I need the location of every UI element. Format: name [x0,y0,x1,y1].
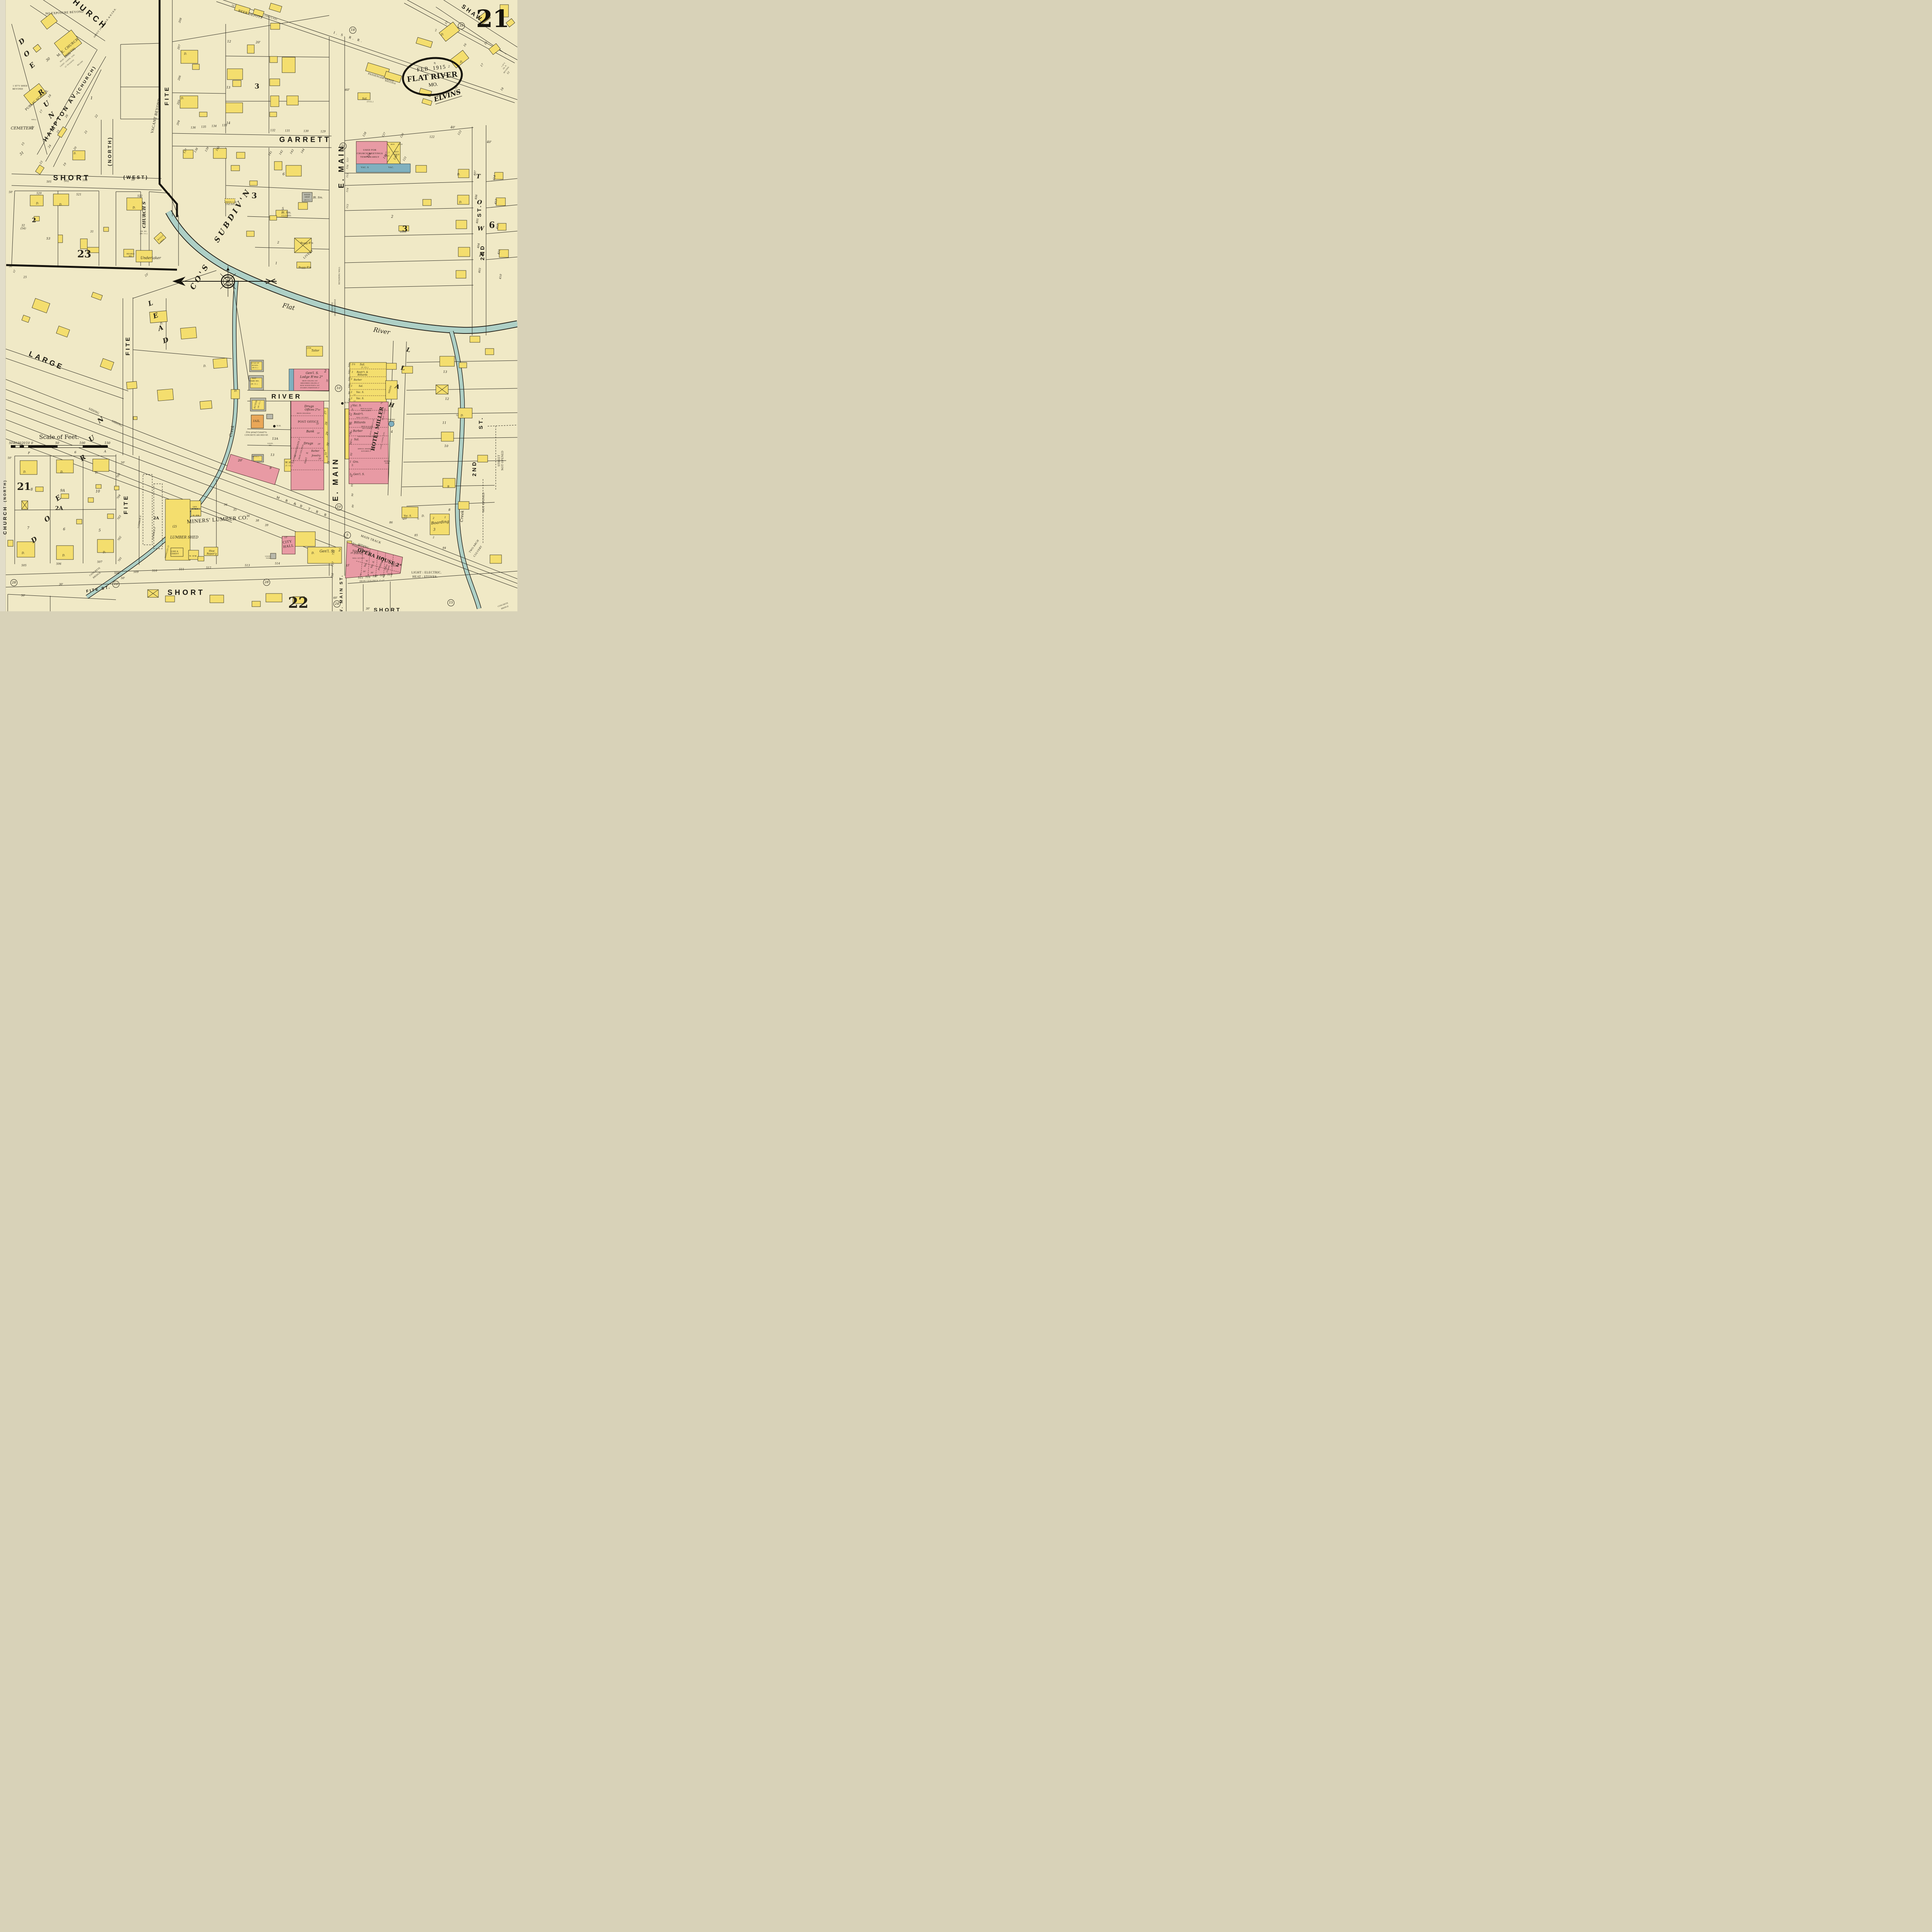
map-label: 35 [233,509,237,512]
map-label: NOT OPENED [482,492,485,512]
map-label: USED FOR [363,149,376,152]
map-label: (2) [172,525,177,528]
map-label: IRON [391,144,395,145]
map-label: RIVER [271,393,302,400]
map-label: (IR. CL.) [251,383,258,385]
map-label: Sal. [360,364,365,366]
map-label: 15' [284,537,288,539]
map-label: FITE [123,494,129,514]
map-label: 50' [131,179,136,182]
map-label: Drugs [304,405,314,408]
map-label: Tailor [311,350,319,352]
map-label: 519 [387,574,392,577]
map-label: 2 [277,241,279,244]
map-label: 6 [74,451,76,454]
map-label: 502 [64,180,69,183]
map-label: SHORT [168,589,205,597]
map-label: SKY LIGHTS [361,410,371,412]
map-label: BEYOND [12,88,23,90]
map-label: O [477,200,482,206]
map-label: 39 [265,524,269,527]
map-label: A [104,450,106,453]
map-label: SCENERY [391,565,399,567]
map-label: 2A [55,506,63,511]
map-label: Buggy R'm [300,242,313,245]
map-label: 506 [56,563,61,566]
map-label: Buggy R'm [298,267,311,269]
map-label: D. [22,552,25,555]
map-label: A [324,450,326,451]
map-label: POST OFFICE [298,420,319,423]
map-label: (VACANT) [226,204,236,206]
sanborn-map-sheet: 21 FEB. 1915 FLAT RIVER MO. ELVINS Scale… [0,0,517,611]
map-label: 2 [32,217,36,223]
map-label: 4 [391,430,393,434]
utility-circle-number: 35 [458,22,465,29]
map-label: (54) [20,228,26,230]
map-label: 520 [36,192,41,195]
map-label: 60' [345,88,350,92]
map-label: 130 [303,130,308,133]
map-label: 2 [350,405,352,408]
map-label: 21 [17,482,31,492]
map-label: 6 [63,528,65,532]
map-label: Vac. S. [356,398,364,400]
map-label: 9 [269,467,271,470]
map-label: OFFICE. DINING RM. [358,448,375,450]
map-label: D. [59,204,62,206]
map-label: D. [459,201,462,204]
map-label: Billiards [354,422,366,424]
map-label: W [478,226,484,232]
map-label: 1 [351,385,352,388]
map-label: 3 [402,225,408,233]
map-label: D. [103,551,106,554]
utility-circle-number: 18 [349,27,356,34]
map-label: D. [461,415,464,417]
map-label: 50' [121,577,125,580]
map-label: Sal. [354,439,359,441]
map-label: 12' [354,394,356,396]
map-label: D. [184,53,187,56]
map-label: 20' [403,518,408,520]
map-label: RETAINING WALL [339,267,341,284]
map-label: ½ [456,415,458,417]
map-label: 5 [282,208,284,211]
map-label: (TIN [307,348,311,350]
map-label: Bank [306,430,315,433]
map-label: 2 [448,66,450,68]
map-label: 2 [435,29,437,32]
map-label: 38 [256,520,259,522]
map-label: 122 [429,136,434,139]
map-label: SHEATHED CEILING 2° [300,383,319,384]
map-label: Undertaker [141,257,161,260]
title-state: MO. [428,81,438,88]
map-label: FITE [164,85,170,105]
map-label: E. MAIN [332,457,340,501]
map-label: GARRETT [279,136,331,144]
map-label: 511 [179,568,184,571]
map-label: Bl. Sm. [313,197,323,199]
map-label: 50' [8,457,12,460]
map-label: 505 [21,565,26,567]
map-label: 31 [90,231,94,233]
map-label: 3 [391,404,393,407]
map-label: 36 [247,515,250,518]
map-label: N [479,252,485,258]
scale-tick: 50 [9,441,13,445]
map-label: KITCHEN 2° [361,451,371,452]
map-label: 12' [354,400,356,402]
map-label: IRON CEILINGS [297,413,311,415]
map-label: LIGHT : ELECTRIC. [412,571,442,574]
map-label: D.G. [354,553,359,555]
map-label: ABV. GR. [388,421,395,422]
map-label: HAY [252,378,256,380]
map-label: 515 [358,577,363,580]
map-label: (IR.CL.) [252,367,258,369]
map-label: 18' [316,423,319,425]
map-label: 2 [338,549,341,553]
map-label: E. MAIN [338,144,345,188]
map-label: Restr't. [354,413,364,416]
map-label: CONCRETE [332,302,334,313]
map-label: CONCRETE ARCHED RF. [245,435,269,437]
map-label: 32 [22,224,25,227]
map-label: 13 [270,454,274,457]
map-label: CHURCH S [142,202,146,228]
map-label: D. [36,202,39,205]
scale-tick: 150 [104,441,110,445]
map-label: D. [160,323,163,325]
map-label: LUMBER SHED [170,536,199,540]
map-label: 514 [275,563,280,565]
scale-tick: 100 [79,441,85,445]
map-label: 20' [256,41,260,44]
map-label: (T. CL.) [361,367,369,369]
utility-circle-number: 10 [335,385,342,392]
utility-circle-number: 24 [333,600,340,607]
map-label: 50' [21,595,26,597]
map-label: 40' [451,126,455,129]
map-label: Barber [311,450,319,452]
map-label: 50' [9,265,13,268]
scale-segment [20,446,24,447]
scale-segment [11,446,15,447]
map-label: PHOTO CAR [225,202,237,204]
map-label: Lodge R'ms 2° [300,376,323,379]
map-label: W. Ho. [285,462,293,464]
map-label: SHOP [304,197,310,199]
map-label: 7 [381,558,384,563]
map-label: D. [311,552,315,555]
map-label: 136 [190,127,196,129]
map-label: (IR. CL.) [140,233,147,235]
map-label: 22 [288,595,309,610]
map-label: TANK [385,463,389,464]
map-label: OFF. [193,506,197,509]
map-label: 7 [27,527,29,531]
map-label: D. [62,554,65,557]
map-label: 2° [381,402,383,405]
map-label: 25 [24,276,27,279]
map-label: 2ND [471,460,477,476]
map-label: TANK [266,558,270,559]
map-label: Sal. [359,385,363,388]
map-label: 2 [391,216,393,219]
map-label: WELL [31,119,37,121]
map-label: Drugs [304,442,313,445]
map-label: 11 [442,422,446,425]
map-label: 1 [351,391,352,394]
map-label: D. [457,173,460,176]
map-label: SM. HO. [140,231,147,233]
map-label: 60' [333,597,338,600]
map-label: 50' [9,191,13,194]
map-label: 23 [77,249,91,259]
scale-segment [32,446,58,447]
map-label: WALL 1ST ONLY [352,558,365,560]
map-label: 2A [153,517,159,520]
map-label: IRON CEILING 1ST [302,380,318,382]
map-label: 13 [226,86,230,89]
map-label: D.H. [277,425,281,427]
map-label: 129 [320,131,325,133]
map-label: GASOL. ENG. BST. [356,551,370,553]
map-label: 5 [99,529,101,533]
map-label: 1 ST'Y SHED [13,85,27,87]
map-label: 507 [97,561,102,564]
map-label: Jewelry [312,455,321,457]
map-label: 30' [366,608,370,611]
map-label: BOXES [252,365,258,367]
map-label: Barber [353,430,363,433]
map-label: 501 [46,181,51,184]
utility-circle-number: 15 [447,599,454,606]
map-label: 3 [433,529,435,532]
utility-circle-number: 10 [335,503,342,510]
map-label: 1 [351,398,352,400]
map-label: 3 [252,192,257,199]
map-label: NOT [394,151,399,153]
map-label: ARCHED BRIDGE [335,299,337,316]
map-label: SHORT [374,607,401,611]
map-label: 6 [489,221,495,230]
map-label: Bl. Sm. [281,212,291,214]
map-label: 28' [318,444,321,446]
map-label: 10 [95,490,100,494]
map-label: 1 [90,97,93,100]
map-label: 2 [433,537,434,539]
map-label: 517 [372,575,378,578]
map-label: 1 [444,517,446,519]
map-label: Fire proof Constr'n. [246,432,267,434]
map-label: 3 [255,83,260,90]
map-label: CHURCH [3,505,7,534]
map-label: 1½ [352,364,355,366]
map-label: B [326,456,328,457]
map-label: Offices 2° [305,409,318,412]
map-label: 13 [443,371,447,374]
map-label: 20' [238,459,243,462]
map-label: D. [181,97,184,100]
map-label: STUDD'G PARTITION 2° [300,387,320,389]
map-label: 30' [59,583,63,586]
map-label: 1 [352,371,353,374]
map-label: 509 [133,571,138,574]
utility-circle-number: 28 [263,579,270,586]
map-label: D. [441,34,444,36]
map-label: WALL 1ST ONLY [356,417,369,419]
map-label: F [28,452,30,455]
map-label: D. [95,472,98,474]
map-label: Gen'l. S. [306,372,319,375]
map-label: Sal. [362,98,367,100]
map-label: 131 [285,130,290,133]
map-label: D. [234,390,237,393]
map-label: NOT OPENED [501,451,504,470]
map-label: D. [133,207,136,209]
map-label: (IR.CL.) [304,199,310,201]
map-label: 133 [222,124,227,127]
map-label: ½ [417,518,419,520]
map-label: 513 [245,565,250,567]
utility-circle-number: 28 [10,579,17,586]
map-label: Repair'g [207,553,217,555]
map-label: 28' [318,458,321,460]
map-label: ST. [478,416,483,429]
map-label: VAC. [388,167,394,169]
map-label: 86 [389,522,393,524]
scale-tick: 50 [55,441,59,445]
map-label: 135 [201,126,206,129]
map-label: (NORTH) [3,480,7,502]
map-label: D. [74,153,77,155]
map-label: D. [460,61,463,64]
map-label: 1 [350,461,351,464]
scale-segment [28,446,32,447]
map-label: Gen'l. S. [353,473,365,476]
map-label: (IR.CL.) [252,456,259,458]
map-label: (CLOSED) [281,215,291,217]
map-label: 512 [206,567,211,570]
scale-tick: 30 [17,441,21,445]
map-label: W. MAIN ST. [340,574,344,611]
map-label: 13A [272,437,278,440]
map-label: 2 [433,517,434,520]
map-label: 40' [487,141,492,144]
map-label: HEAT : STOVES. [412,575,437,578]
map-label: 30' [371,572,374,574]
map-label: (NORTH) [107,136,112,166]
map-label: 18' [317,433,320,435]
map-label: 9 [447,485,449,488]
map-label: 521 [76,194,81,196]
scale-tick: 10 [26,441,30,445]
map-label: Barber [354,379,362,381]
map-label: W. R'M. [189,555,197,558]
map-label: 516 [365,576,370,579]
scale-tick: 40 [13,441,17,445]
map-label: WARE HO. [249,381,259,383]
map-label: 1 [275,262,277,265]
scale-tick: 20 [22,441,26,445]
map-label: Billiards [357,374,367,376]
map-label: D. [23,471,26,474]
map-label: 85 [415,534,418,537]
map-label: ROW WOOD POSTS 1ST [300,385,320,386]
map-label: 503 [82,179,87,182]
map-label: (T. CL.) [286,465,293,467]
scale-bar-rule [11,445,107,448]
map-label: 1 [351,378,352,381]
map-label: 84 [443,547,446,550]
map-label: STREET [497,455,500,466]
map-label: JAIL [253,420,260,423]
map-label: 9A [60,490,65,493]
map-label: HO. [129,256,132,258]
map-label: FITE [125,335,131,355]
map-label: Vac. S. [356,391,364,394]
utility-circle-number: 5 [344,532,351,539]
scale-tick: 0 [31,441,33,445]
map-label: 2B [350,553,353,554]
map-label: (T.CL.) [367,101,373,103]
map-label: D. [60,471,63,474]
map-label: 10 [444,445,448,448]
map-label: Gro. [353,461,359,464]
map-label: 34 [224,504,228,507]
map-label: 12 [445,398,449,401]
map-label: CEMENT [170,553,179,555]
map-label: CLAD [398,144,403,145]
map-label: (1.) [386,151,389,154]
map-label: SALOON STORE ROOM [358,436,378,438]
map-label: 53 [46,237,50,240]
map-label: 132 [270,129,275,132]
map-label: 12 [227,40,231,43]
map-label: 30' [363,571,366,573]
map-label: 8 [448,509,450,512]
map-label: 134 [211,125,216,128]
map-label: 2 [324,370,327,374]
map-label: 50' [121,462,125,464]
utility-circle-number: 10 [112,581,119,588]
map-label: LIME & [171,551,178,553]
map-label: VAC. S [361,167,369,169]
map-label: Vac. S. [352,405,362,407]
map-label: ST. [476,204,482,217]
map-label: 6 [282,173,285,177]
map-label: (WEST) [123,175,149,180]
map-label: 510 [152,570,157,573]
map-label: T [476,174,480,180]
map-label: D. [203,365,206,368]
map-label: 508 [114,572,119,575]
utility-circle-number: 10 [340,143,347,150]
map-label: HO. [269,445,272,446]
map-label: 30' [318,410,321,412]
map-label: D. [422,515,425,518]
map-label: HEARSE [126,253,134,255]
map-label: W. RM. [192,515,200,517]
map-label: SKY LIGHTS [362,428,372,429]
scale-segment [83,446,108,447]
map-label: 522 [137,195,142,198]
map-label: D.H. [345,402,349,404]
map-label: 518 [380,575,385,577]
